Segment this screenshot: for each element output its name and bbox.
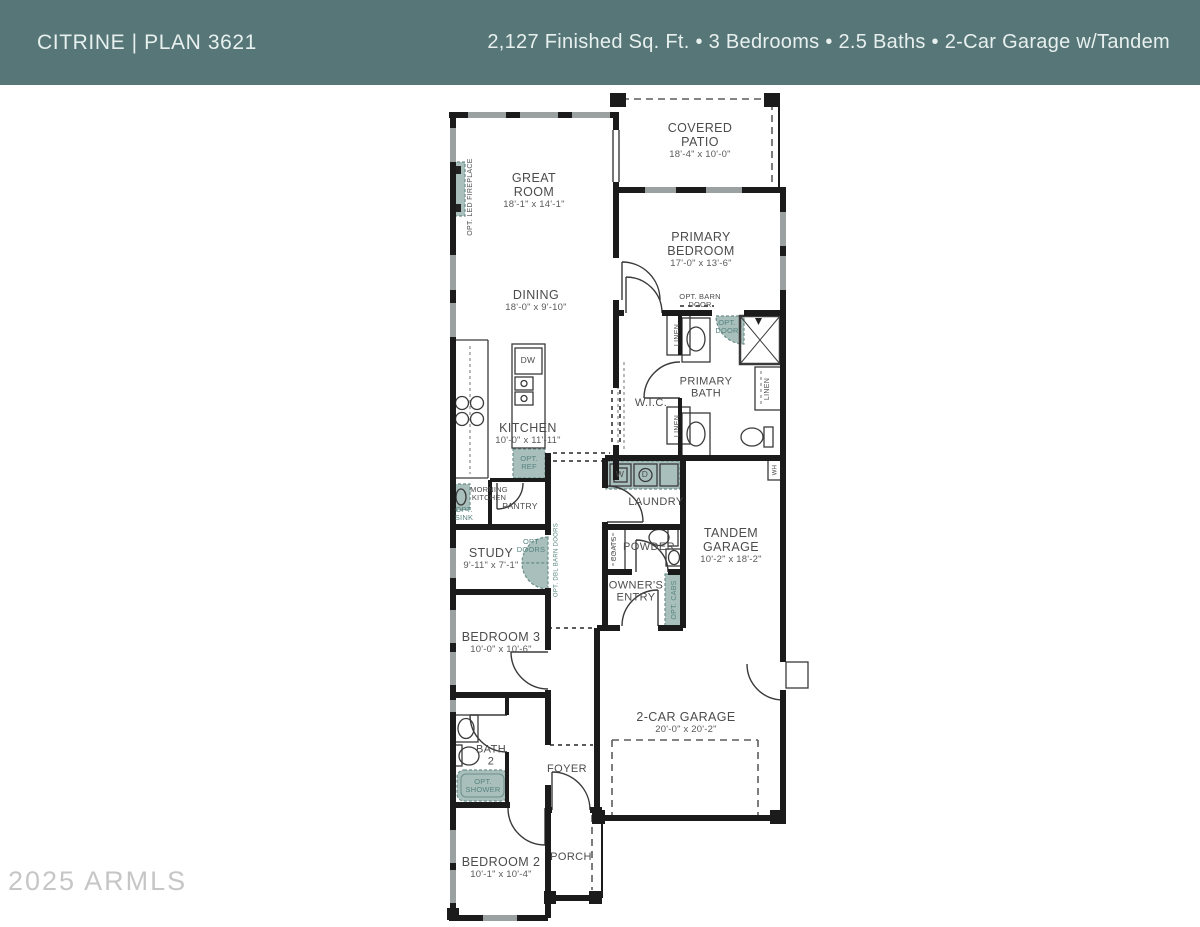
room-label-covered-patio: COVERED PATIO 18'-4" x 10'-0" [660, 121, 740, 161]
annotation-opt-led-fireplace: OPT. LED FIREPLACE [467, 158, 475, 235]
annotation-opt-cabs: OPT. CABS [671, 580, 679, 619]
room-label-foyer: FOYER [547, 763, 587, 775]
room-label-primary-bedroom: PRIMARY BEDROOM 17'-0" x 13'-6" [656, 230, 746, 270]
room-label-2-car-garage: 2-CAR GARAGE 20'-0" x 20'-2" [636, 710, 736, 736]
room-label-wic: W.I.C. [635, 397, 667, 409]
annotation-linen-2: LINEN [764, 378, 772, 400]
room-label-owners-entry: OWNER'S ENTRY [601, 580, 671, 605]
annotation-coats: COATS [611, 536, 619, 561]
room-label-powder: POWDER [623, 541, 675, 553]
room-label-laundry: LAUNDRY [628, 496, 683, 508]
annotation-linen-1: LINEN [674, 324, 682, 346]
room-label-tandem-garage: TANDEM GARAGE 10'-2" x 18'-2" [696, 526, 766, 566]
annotation-linen-3: LINEN [674, 415, 682, 437]
floorplan-sheet: CITRINE | PLAN 3621 2,127 Finished Sq. F… [0, 0, 1200, 927]
room-label-great-room: GREAT ROOM 18'-1" x 14'-1" [499, 171, 569, 211]
armls-watermark: 2025 ARMLS [8, 866, 187, 897]
annotation-opt-door: OPT. DOOR [710, 319, 744, 336]
annotation-opt-sink: OPT. SINK [448, 506, 480, 523]
annotation-opt-dbl-barn-doors: OPT. DBL BARN DOORS [554, 523, 561, 597]
room-label-primary-bath: PRIMARY BATH [676, 376, 736, 401]
floor-plan-drawing [0, 0, 1200, 927]
plan-title: CITRINE | PLAN 3621 [37, 31, 257, 55]
room-label-dining: DINING 18'-0" x 9'-10" [486, 288, 586, 314]
plan-specs: 2,127 Finished Sq. Ft. • 3 Bedrooms • 2.… [487, 31, 1170, 54]
room-label-bedroom-2: BEDROOM 2 10'-1" x 10'-4" [456, 855, 546, 881]
annotation-opt-shower: OPT. SHOWER [461, 778, 505, 795]
annotation-pantry: PANTRY [502, 502, 538, 512]
room-label-bath-2: BATH 2 [473, 744, 509, 769]
annotation-morning-kitchen: MORNING KITCHEN [458, 486, 520, 503]
annotation-water-heater: WH [772, 465, 779, 476]
annotation-dishwasher: DW [521, 356, 536, 366]
annotation-opt-doors: OPT DOORS [510, 538, 552, 555]
room-label-bedroom-3: BEDROOM 3 10'-0" x 10'-6" [456, 630, 546, 656]
annotation-opt-ref: OPT. REF [513, 455, 545, 472]
annotation-washer: W [616, 470, 624, 480]
annotation-opt-barn-door: OPT. BARN DOOR [673, 293, 728, 310]
annotation-dryer: D [642, 470, 648, 480]
room-label-porch: PORCH [550, 851, 592, 863]
room-label-kitchen: KITCHEN 10'-0" x 11'-11" [483, 421, 573, 447]
header-bar: CITRINE | PLAN 3621 2,127 Finished Sq. F… [0, 0, 1200, 85]
